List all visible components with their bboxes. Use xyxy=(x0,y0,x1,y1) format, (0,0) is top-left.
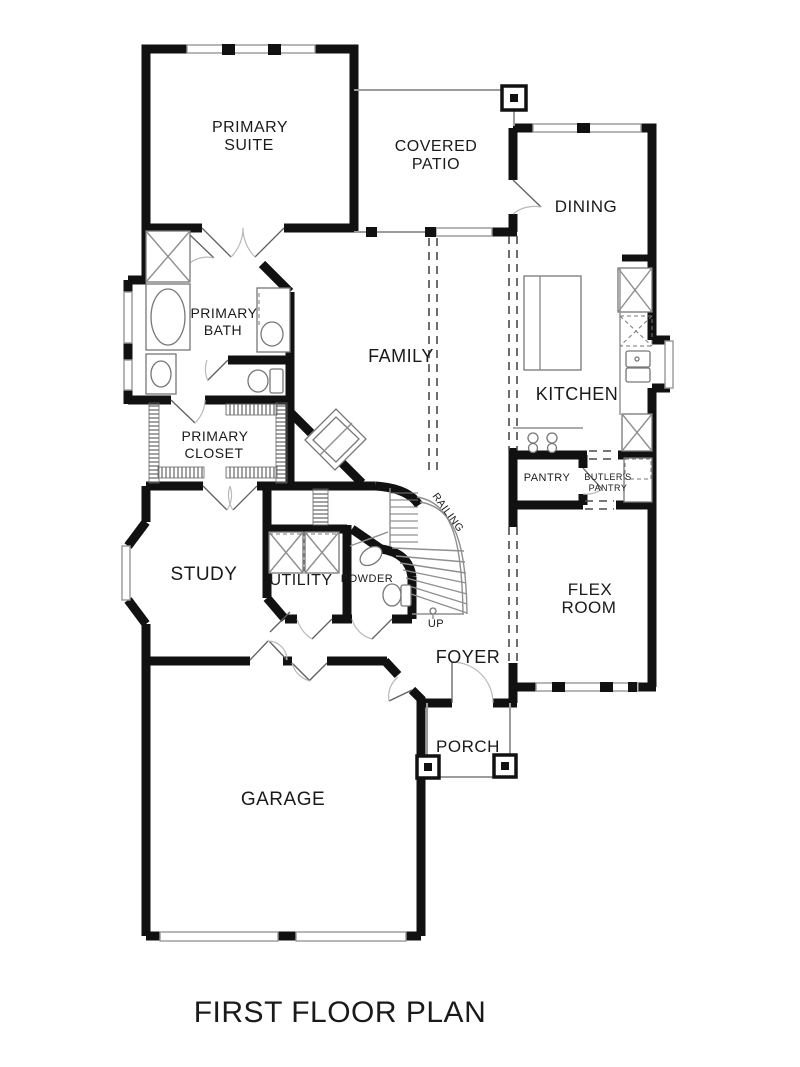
room-label-family: FAMILY xyxy=(368,346,434,366)
room-label-butlers-pantry: PANTRY xyxy=(589,483,628,493)
room-label-primary-suite: PRIMARY xyxy=(212,119,288,136)
sink xyxy=(261,322,283,346)
room-label-flex-room: FLEX xyxy=(568,580,613,599)
cooktop-burner xyxy=(548,444,557,453)
sink xyxy=(151,361,171,387)
room-label-study: STUDY xyxy=(171,564,238,585)
room-label-primary-bath: BATH xyxy=(204,322,242,338)
room-label-primary-closet: PRIMARY xyxy=(181,428,248,444)
stair-label-up: UP xyxy=(428,618,444,630)
garage-door-right xyxy=(296,932,406,941)
cooktop-burner xyxy=(528,433,538,443)
cooktop-burner xyxy=(529,444,538,453)
room-label-primary-suite: SUITE xyxy=(224,137,274,154)
fireplace xyxy=(305,409,366,470)
floor-plan-drawing: PRIMARY SUITE COVERED PATIO DINING KITCH… xyxy=(0,0,800,1067)
cooktop-burner xyxy=(547,433,557,443)
room-label-flex-room: ROOM xyxy=(562,598,617,617)
room-label-butlers-pantry: BUTLER'S xyxy=(584,472,631,482)
room-label-powder: POWDER xyxy=(341,573,394,585)
garage-door-left xyxy=(160,932,278,941)
stair-label-railing: RAILING xyxy=(430,491,466,535)
room-label-foyer: FOYER xyxy=(436,647,501,667)
toilet xyxy=(248,370,268,392)
room-label-garage: GARAGE xyxy=(241,789,325,810)
room-label-kitchen: KITCHEN xyxy=(536,384,619,404)
room-label-covered-patio: COVERED xyxy=(395,138,478,155)
stair-newel-icon xyxy=(430,608,436,614)
utility-fixtures xyxy=(269,532,339,573)
toilet xyxy=(383,584,401,606)
kitchen-island xyxy=(524,276,581,370)
page-title: FIRST FLOOR PLAN xyxy=(194,996,487,1029)
room-label-porch: PORCH xyxy=(436,737,500,756)
patio-porch-edges xyxy=(354,90,514,777)
room-label-covered-patio: PATIO xyxy=(412,156,460,173)
room-label-utility: UTILITY xyxy=(269,572,332,589)
room-label-primary-closet: CLOSET xyxy=(184,445,243,461)
room-label-primary-bath: PRIMARY xyxy=(190,305,257,321)
room-label-dining: DINING xyxy=(555,197,618,216)
bathtub xyxy=(151,289,185,345)
room-label-pantry: PANTRY xyxy=(524,472,571,484)
floor-plan-page: PRIMARY SUITE COVERED PATIO DINING KITCH… xyxy=(0,0,800,1067)
labels: PRIMARY SUITE COVERED PATIO DINING KITCH… xyxy=(171,119,632,1029)
linen-closet xyxy=(313,489,328,525)
